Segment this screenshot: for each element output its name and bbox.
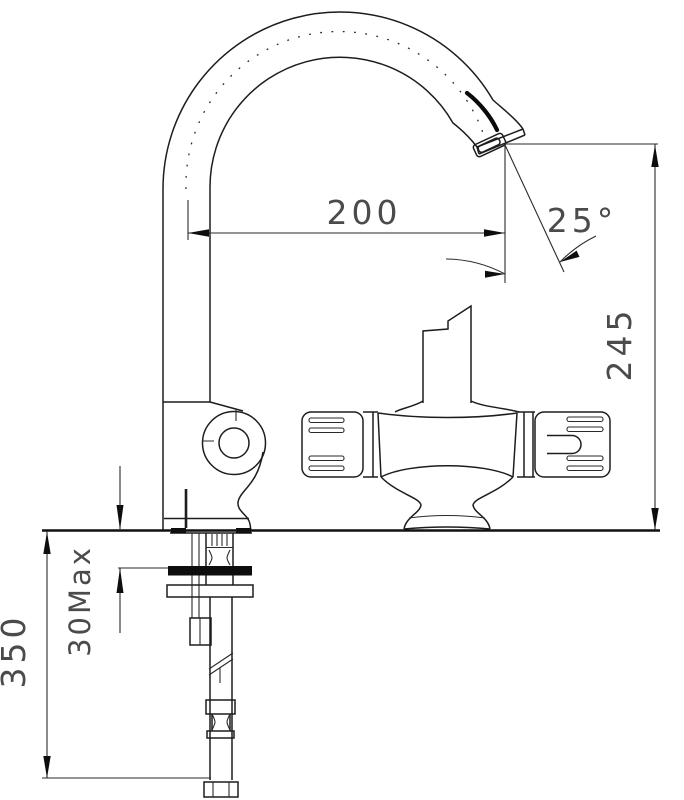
tube-ring [207,731,234,738]
right-knob [517,412,610,477]
valve-body-bottom-edge [381,466,513,477]
dim-label-350: 350 [0,614,33,689]
shank-bellows [209,550,230,565]
hex-fitting-flats [213,782,229,797]
body-shoulder-line [210,402,243,411]
aerator-outlet [472,129,525,158]
faucet-dimension-drawing: 200 25° 245 350 30Max [0,0,684,800]
lever-flare-left [395,401,423,412]
tube-bellows-curves [212,714,230,730]
center-valve-assembly [378,306,519,529]
supply-tube-edges [210,597,232,780]
arrowhead-down [651,508,658,530]
arrowhead-up [43,532,50,554]
swivel-joint-outer-circle [203,412,266,475]
left-knob-grip-slot [309,456,344,461]
dimension-spout-reach: 200 [188,193,505,240]
dimension-outlet-angle: 25° [446,145,617,283]
swivel-joint-inner-circle [219,428,249,458]
spout-centerline-dotted [186,32,483,189]
vase-base-right [473,477,513,529]
left-knob-grip-slot [309,428,344,433]
left-knob-grip-slot [309,418,344,423]
dim-label-30max: 30Max [63,545,97,657]
dim-label-245: 245 [600,307,639,382]
lever-handle [423,306,471,403]
threaded-shank-edges [206,533,233,585]
faucet-dimension-drawing-page: 200 25° 245 350 30Max [0,0,684,800]
left-knob-body [302,412,363,477]
swivel-center-ticks [202,409,236,441]
right-knob-grip-slot [567,456,603,461]
shank-spline-hatch [212,534,227,546]
vase-base-left [381,477,421,529]
arrowhead-right [484,229,505,236]
aerator-band-ends [477,129,525,154]
dimension-deck-thickness: 30Max [63,466,168,657]
vase-foot-bottom [404,527,490,529]
valve-body-sides [378,413,517,477]
hose-end-hex-fitting [204,782,238,797]
valve-body-top-edge [378,413,517,418]
arrowhead-down [117,505,124,530]
dim-label-200: 200 [327,193,402,232]
right-knob-u-slot [547,436,581,454]
right-knob-grip-slot [567,466,603,471]
angle-arrow-left [485,271,505,278]
arrowhead-up [117,568,124,593]
swivel-body [163,402,266,534]
rubber-washer [168,566,252,576]
arrowhead-up [651,145,658,167]
left-knob-collar [363,412,378,477]
right-knob-grip-slot [567,427,603,432]
arrowhead-down [43,756,50,778]
left-knob [302,412,378,477]
arrowhead-left [188,229,209,236]
left-knob-grip-slot [309,466,344,471]
dim-label-25deg: 25° [547,201,618,240]
right-knob-grip-slot [567,417,603,422]
metal-flange-washer [167,585,253,597]
pipe-break-symbol [209,653,233,683]
angle-arc-left [446,259,505,274]
right-knob-collar [517,412,535,477]
lever-flare-right [471,401,519,412]
under-counter-assembly [167,489,253,797]
vase-foot-top-line [409,516,485,519]
